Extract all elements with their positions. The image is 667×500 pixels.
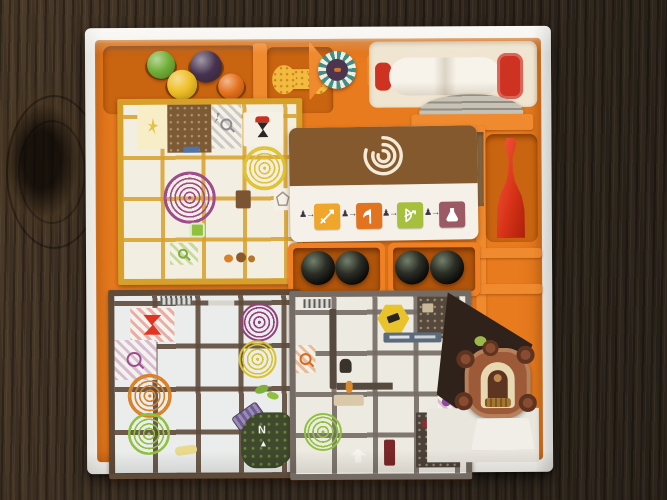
room-door [183, 147, 199, 153]
standee-loop [457, 350, 475, 368]
insert-shelf [478, 248, 542, 258]
magnifier-icon [220, 118, 232, 130]
standee-base [471, 418, 535, 450]
leaf-icon [266, 391, 279, 401]
sand-timer-cap-right [497, 53, 523, 99]
security-room [167, 105, 211, 153]
flask-icon [443, 205, 461, 223]
flask-slot [439, 201, 465, 227]
yellow-vortex [238, 340, 276, 378]
bow-icon [401, 206, 419, 224]
platform [334, 395, 364, 406]
search-cell [211, 104, 241, 148]
axe-icon [360, 207, 378, 225]
yellow-mall-tile [117, 98, 303, 285]
room-prop [422, 303, 433, 312]
small-props [224, 250, 256, 264]
green-exit-cell [170, 243, 198, 265]
camera-sign [377, 305, 409, 333]
pawn-arrow-glyph: ♟→ [382, 208, 397, 217]
yellow-vortex [242, 146, 286, 190]
dome-token [301, 251, 335, 285]
prop-dot [248, 255, 255, 262]
standee-loop [519, 394, 537, 412]
orange-vortex [128, 374, 172, 418]
magnifier-icon [127, 352, 142, 367]
yellow-streak [175, 444, 198, 456]
garden-foliage: N ▲ [241, 412, 293, 468]
yellow-pawn [167, 70, 197, 100]
bench [236, 190, 251, 208]
label-text-mark [414, 335, 435, 338]
timer-alert-cell [130, 308, 174, 342]
interior-wall [329, 309, 336, 389]
pawn-arrow-glyph: ♟→ [424, 208, 439, 217]
sign-label [383, 332, 441, 342]
vortex-spiral-icon [359, 131, 408, 180]
walker-figure [346, 381, 353, 393]
wood-knot-ring [18, 120, 86, 224]
green-vortex [128, 413, 170, 455]
camera-icon [387, 313, 401, 324]
bow-slot [397, 202, 423, 228]
orange-pawn [218, 73, 244, 99]
compass-label: N [258, 425, 266, 436]
plant-icon [147, 118, 158, 135]
pawn-arrow-glyph: ♟→ [299, 210, 314, 219]
basket [485, 398, 511, 407]
dome-token [430, 250, 464, 284]
shopkeeper-figure [494, 374, 502, 382]
mini-marks [208, 297, 234, 307]
timer-cell [243, 112, 283, 146]
lightning-icon [214, 112, 221, 124]
search-cell [295, 345, 315, 373]
standee-loop [455, 392, 473, 410]
prop-dot [236, 252, 246, 262]
timer-icon-cap [255, 116, 269, 122]
dome-token [395, 250, 429, 284]
photo-scene: ♟→ ♟→ ♟→ ♟→ [0, 0, 667, 500]
vent-panel [303, 299, 331, 308]
standee-loop [517, 346, 535, 364]
game-box: ♟→ ♟→ ♟→ ♟→ [85, 26, 553, 474]
purple-vortex [164, 172, 216, 224]
insert-shelf [478, 284, 542, 294]
token-key-icon [334, 68, 341, 72]
standee-arch [481, 362, 515, 408]
prop-dot [224, 254, 233, 262]
green-badge [190, 223, 205, 238]
vortex-card: ♟→ ♟→ ♟→ ♟→ [289, 125, 479, 242]
sand-timer-glass [389, 57, 501, 96]
green-vortex [304, 413, 342, 451]
exit-cell [346, 447, 370, 465]
key-icon [178, 249, 188, 259]
sword-icon [318, 207, 336, 225]
red-sign [384, 440, 395, 466]
red-hourglass-icon [143, 315, 161, 335]
standee-decoration [458, 344, 536, 422]
axe-slot [356, 203, 382, 229]
purple-vortex [240, 303, 278, 341]
compass-arrow-icon: ▲ [259, 439, 268, 448]
dome-token [335, 251, 369, 285]
pentagon-icon [276, 191, 290, 207]
brown-mall-tile: N ▲ [108, 289, 301, 479]
standee-base-tab [493, 450, 517, 458]
sword-slot [314, 203, 340, 229]
vent-panel [160, 296, 192, 305]
pawn-arrow-glyph: ♟→ [341, 209, 356, 218]
hourglass-icon [257, 122, 268, 137]
exit-arrow-icon [350, 449, 366, 463]
plant-cell [137, 105, 167, 149]
label-text-mark [389, 336, 409, 339]
magnifier-icon [300, 353, 312, 365]
wall-figure [340, 359, 352, 373]
standee-loop [482, 340, 498, 356]
